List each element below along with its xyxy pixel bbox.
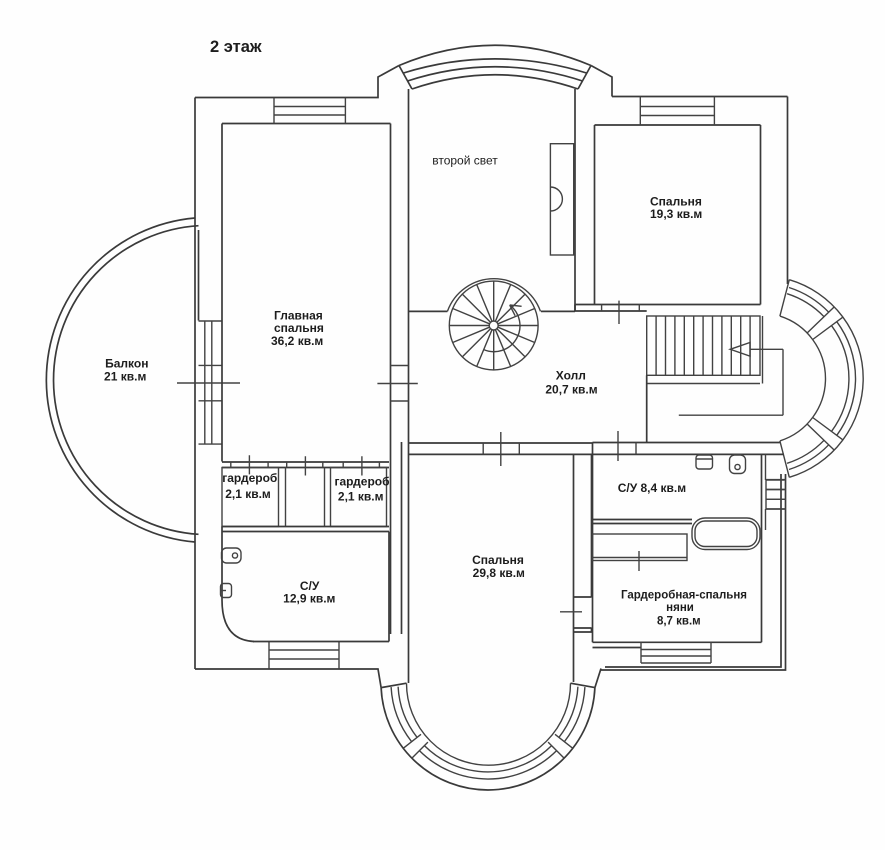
svg-text:второй свет: второй свет — [432, 154, 498, 168]
svg-text:Спальня: Спальня — [472, 553, 524, 567]
svg-text:спальня: спальня — [274, 321, 324, 335]
svg-text:2,1 кв.м: 2,1 кв.м — [338, 490, 384, 504]
svg-text:36,2 кв.м: 36,2 кв.м — [271, 334, 323, 348]
svg-text:гардероб: гардероб — [222, 471, 277, 485]
svg-text:29,8 кв.м: 29,8 кв.м — [473, 566, 525, 580]
svg-text:Гардеробная-спальня: Гардеробная-спальня — [621, 590, 747, 602]
svg-text:20,7 кв.м: 20,7 кв.м — [545, 383, 597, 397]
svg-text:21 кв.м: 21 кв.м — [104, 370, 146, 384]
svg-text:Балкон: Балкон — [105, 357, 148, 371]
svg-text:19,3 кв.м: 19,3 кв.м — [650, 207, 702, 221]
svg-text:2,1 кв.м: 2,1 кв.м — [225, 487, 271, 501]
svg-text:С/У 8,4 кв.м: С/У 8,4 кв.м — [618, 481, 687, 495]
svg-text:8,7 кв.м: 8,7 кв.м — [657, 616, 701, 628]
svg-text:няни: няни — [666, 602, 694, 614]
svg-text:12,9 кв.м: 12,9 кв.м — [283, 592, 335, 606]
svg-text:2 этаж: 2 этаж — [210, 38, 262, 56]
svg-text:Холл: Холл — [556, 369, 586, 383]
svg-text:гардероб: гардероб — [334, 475, 389, 489]
